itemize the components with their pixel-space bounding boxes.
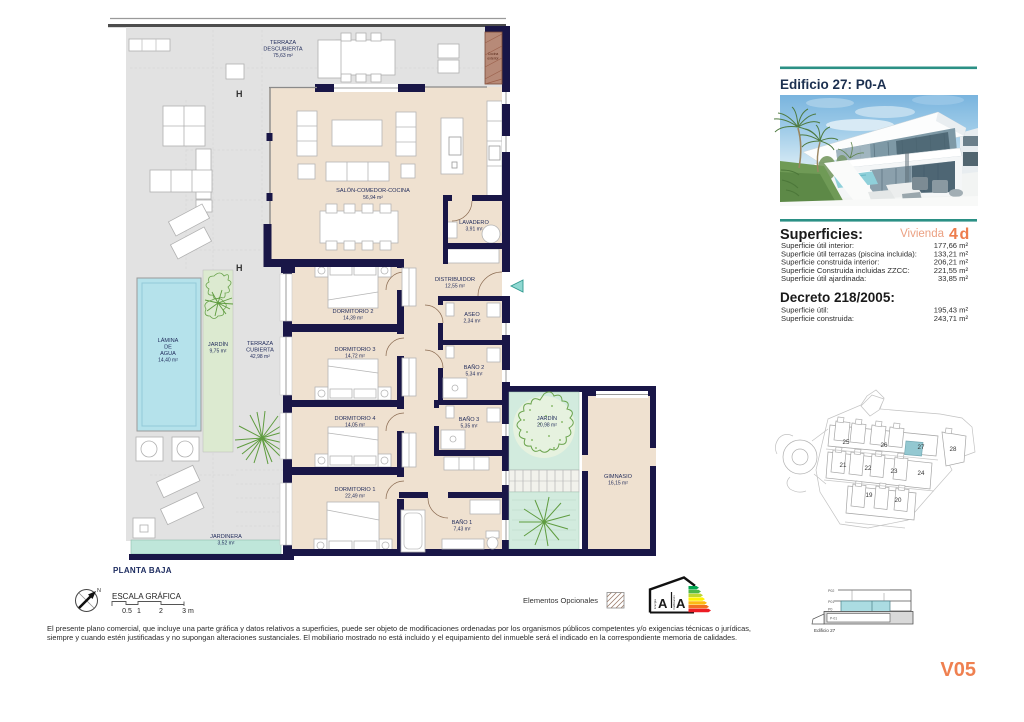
svg-text:24: 24: [918, 470, 925, 477]
svg-text:19: 19: [866, 492, 873, 499]
svg-text:JARDÍN: JARDÍN: [537, 415, 557, 422]
svg-text:Cocina: Cocina: [488, 52, 499, 56]
svg-text:3 m: 3 m: [182, 608, 194, 615]
svg-text:14,40 m²: 14,40 m²: [158, 358, 178, 364]
svg-text:5,34 m²: 5,34 m²: [466, 372, 483, 378]
svg-text:2,34 m²: 2,34 m²: [464, 319, 481, 325]
svg-text:Edificio 27: Edificio 27: [814, 628, 836, 633]
svg-text:TERRAZA: TERRAZA: [247, 341, 273, 347]
svg-text:SALÓN-COMEDOR-COCINA: SALÓN-COMEDOR-COCINA: [336, 187, 410, 194]
svg-text:56,94 m²: 56,94 m²: [363, 195, 383, 201]
svg-text:5,35 m²: 5,35 m²: [461, 424, 478, 430]
svg-text:14,72 m²: 14,72 m²: [345, 354, 365, 360]
svg-text:ESCALA GRÁFICA: ESCALA GRÁFICA: [112, 592, 182, 601]
svg-text:JARDÍN: JARDÍN: [208, 341, 228, 348]
svg-text:H: H: [236, 263, 243, 273]
svg-text:27: 27: [918, 444, 925, 451]
svg-text:0.5: 0.5: [122, 608, 132, 615]
svg-text:23: 23: [891, 468, 898, 475]
svg-text:BAÑO 2: BAÑO 2: [464, 364, 485, 371]
svg-text:Edificio 27: P0-A: Edificio 27: P0-A: [780, 77, 887, 92]
svg-text:A: A: [676, 596, 686, 611]
svg-text:El presente plano comercial, q: El presente plano comercial, que incluye…: [47, 624, 751, 633]
svg-text:Superficie construida:: Superficie construida:: [781, 314, 854, 323]
svg-text:DORMITORIO 1: DORMITORIO 1: [335, 487, 376, 493]
svg-text:BAÑO 3: BAÑO 3: [459, 416, 480, 423]
svg-text:33,85 m²: 33,85 m²: [938, 274, 968, 283]
svg-text:PLANTA BAJA: PLANTA BAJA: [113, 566, 172, 575]
svg-text:P-01: P-01: [830, 617, 837, 621]
svg-text:28: 28: [950, 446, 957, 453]
svg-text:exterior: exterior: [487, 57, 499, 61]
svg-text:243,71 m²: 243,71 m²: [934, 314, 969, 323]
svg-text:P02: P02: [828, 589, 834, 593]
svg-text:A: A: [658, 596, 668, 611]
svg-text:22: 22: [865, 465, 872, 472]
svg-text:7,43 m²: 7,43 m²: [454, 527, 471, 533]
svg-text:LAVADERO: LAVADERO: [459, 220, 489, 226]
svg-text:V05: V05: [940, 659, 976, 681]
svg-text:26: 26: [881, 442, 888, 449]
svg-text:20: 20: [895, 497, 902, 504]
svg-text:DORMITORIO 2: DORMITORIO 2: [333, 309, 374, 315]
svg-text:14,05 m²: 14,05 m²: [345, 423, 365, 429]
svg-text:21: 21: [840, 462, 847, 469]
svg-text:DORMITORIO 3: DORMITORIO 3: [335, 347, 376, 353]
svg-text:N: N: [97, 588, 101, 594]
svg-text:75,63 m²: 75,63 m²: [273, 53, 293, 59]
svg-text:Decreto 218/2005:: Decreto 218/2005:: [780, 290, 895, 305]
svg-text:3,91 m²: 3,91 m²: [466, 227, 483, 233]
svg-text:Elementos Opcionales: Elementos Opcionales: [523, 596, 598, 605]
svg-text:TERRAZA: TERRAZA: [270, 40, 296, 46]
svg-text:JARDINERA: JARDINERA: [210, 534, 242, 540]
svg-text:Vivienda: Vivienda: [900, 228, 945, 240]
svg-text:3,52 m²: 3,52 m²: [218, 541, 235, 547]
svg-text:Superficie útil ajardinada:: Superficie útil ajardinada:: [781, 274, 866, 283]
svg-text:H: H: [236, 89, 243, 99]
svg-text:P01: P01: [828, 600, 834, 604]
svg-text:DISTRIBUIDOR: DISTRIBUIDOR: [435, 277, 475, 283]
svg-text:20,98 m²: 20,98 m²: [537, 423, 557, 429]
svg-text:CUBIERTA: CUBIERTA: [246, 348, 274, 354]
svg-text:GIMNASIO: GIMNASIO: [604, 474, 633, 480]
svg-text:DESCUBIERTA: DESCUBIERTA: [263, 47, 303, 53]
svg-text:BAÑO 1: BAÑO 1: [452, 519, 473, 526]
svg-text:DORMITORIO 4: DORMITORIO 4: [335, 416, 376, 422]
svg-text:16,15 m²: 16,15 m²: [608, 481, 628, 487]
svg-text:DE: DE: [164, 345, 172, 351]
svg-text:2: 2: [159, 608, 163, 615]
svg-text:ASEO: ASEO: [464, 312, 480, 318]
svg-text:22,49 m²: 22,49 m²: [345, 494, 365, 500]
svg-text:9,75 m²: 9,75 m²: [210, 349, 227, 355]
svg-text:siempre y cuando estén justifi: siempre y cuando estén justificadas y no…: [47, 633, 737, 642]
svg-text:P0: P0: [828, 608, 832, 612]
svg-text:12,55 m²: 12,55 m²: [445, 284, 465, 290]
svg-text:14,39 m²: 14,39 m²: [343, 316, 363, 322]
svg-text:AGUA: AGUA: [160, 351, 176, 357]
svg-text:42,98 m²: 42,98 m²: [250, 354, 270, 360]
svg-text:25: 25: [843, 439, 850, 446]
svg-text:1: 1: [137, 608, 141, 615]
svg-text:LÁMINA: LÁMINA: [158, 337, 179, 344]
svg-text:Energía: Energía: [653, 599, 657, 609]
